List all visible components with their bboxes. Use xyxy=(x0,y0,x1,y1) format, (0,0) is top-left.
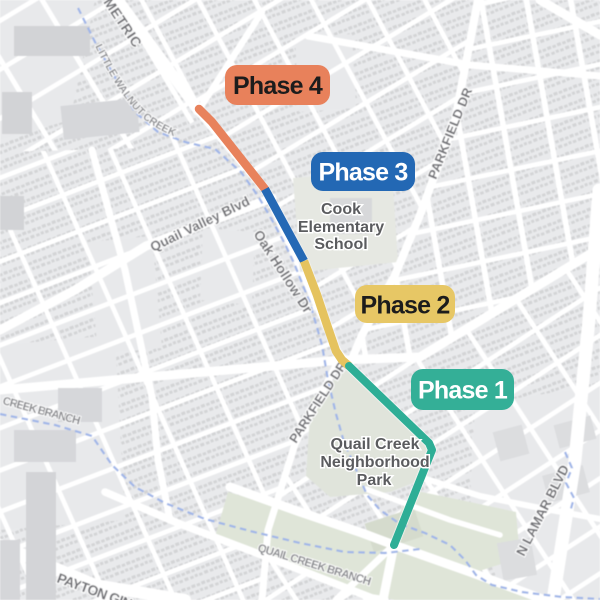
svg-text:Quail Creek: Quail Creek xyxy=(331,436,420,453)
svg-text:Cook: Cook xyxy=(321,201,361,218)
svg-text:Phase 1: Phase 1 xyxy=(418,377,508,405)
svg-text:Phase 2: Phase 2 xyxy=(361,292,450,320)
svg-text:Neighborhood: Neighborhood xyxy=(320,454,429,471)
svg-text:Phase 3: Phase 3 xyxy=(319,159,408,187)
svg-text:Phase 4: Phase 4 xyxy=(233,72,323,100)
svg-text:Park: Park xyxy=(357,472,392,489)
svg-text:School: School xyxy=(314,236,367,253)
svg-text:Elementary: Elementary xyxy=(298,219,384,236)
